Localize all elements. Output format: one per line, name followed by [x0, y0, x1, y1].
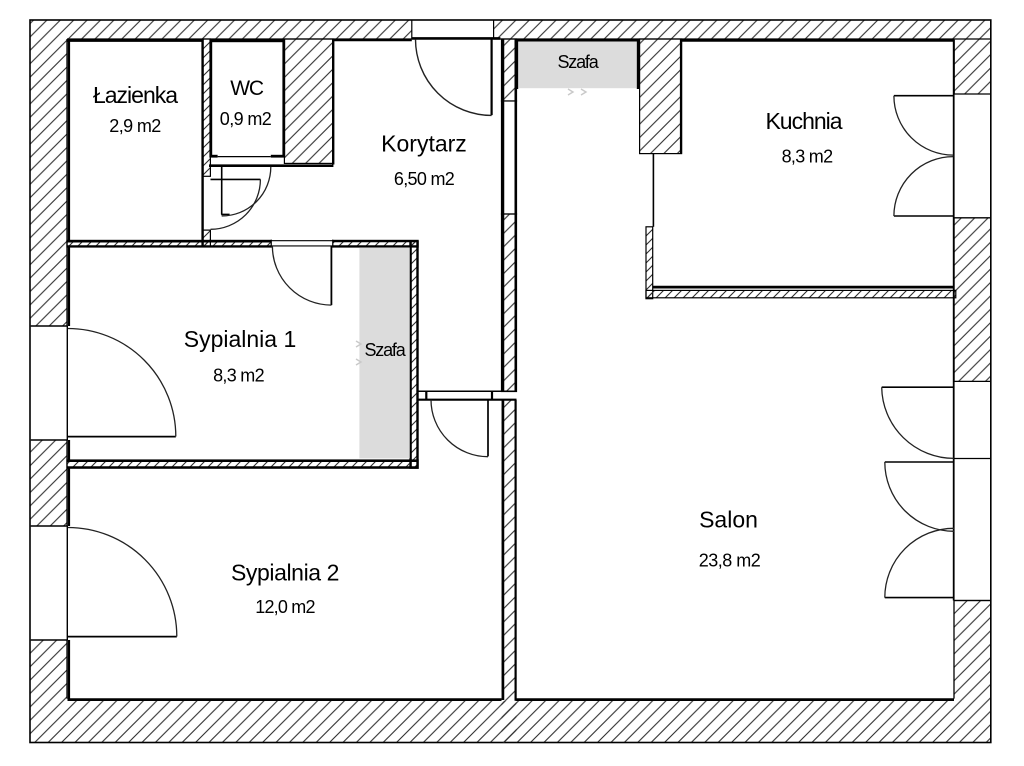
svg-text:WC: WC	[230, 77, 264, 100]
svg-text:6,50 m2: 6,50 m2	[394, 169, 455, 189]
svg-text:Szafa: Szafa	[364, 340, 406, 360]
svg-text:8,3 m2: 8,3 m2	[213, 365, 265, 385]
svg-text:Kuchnia: Kuchnia	[765, 108, 842, 134]
svg-text:Salon: Salon	[699, 506, 758, 532]
svg-text:Korytarz: Korytarz	[381, 131, 467, 157]
svg-text:8,3 m2: 8,3 m2	[782, 147, 834, 167]
svg-text:12,0 m2: 12,0 m2	[255, 597, 315, 617]
svg-text:23,8 m2: 23,8 m2	[699, 551, 761, 571]
svg-text:2,9 m2: 2,9 m2	[109, 116, 161, 136]
svg-text:Sypialnia 2: Sypialnia 2	[231, 560, 339, 586]
svg-text:0,9 m2: 0,9 m2	[220, 109, 272, 129]
svg-text:Łazienka: Łazienka	[93, 82, 178, 108]
svg-text:Sypialnia 1: Sypialnia 1	[184, 326, 297, 352]
svg-text:Szafa: Szafa	[557, 52, 599, 72]
